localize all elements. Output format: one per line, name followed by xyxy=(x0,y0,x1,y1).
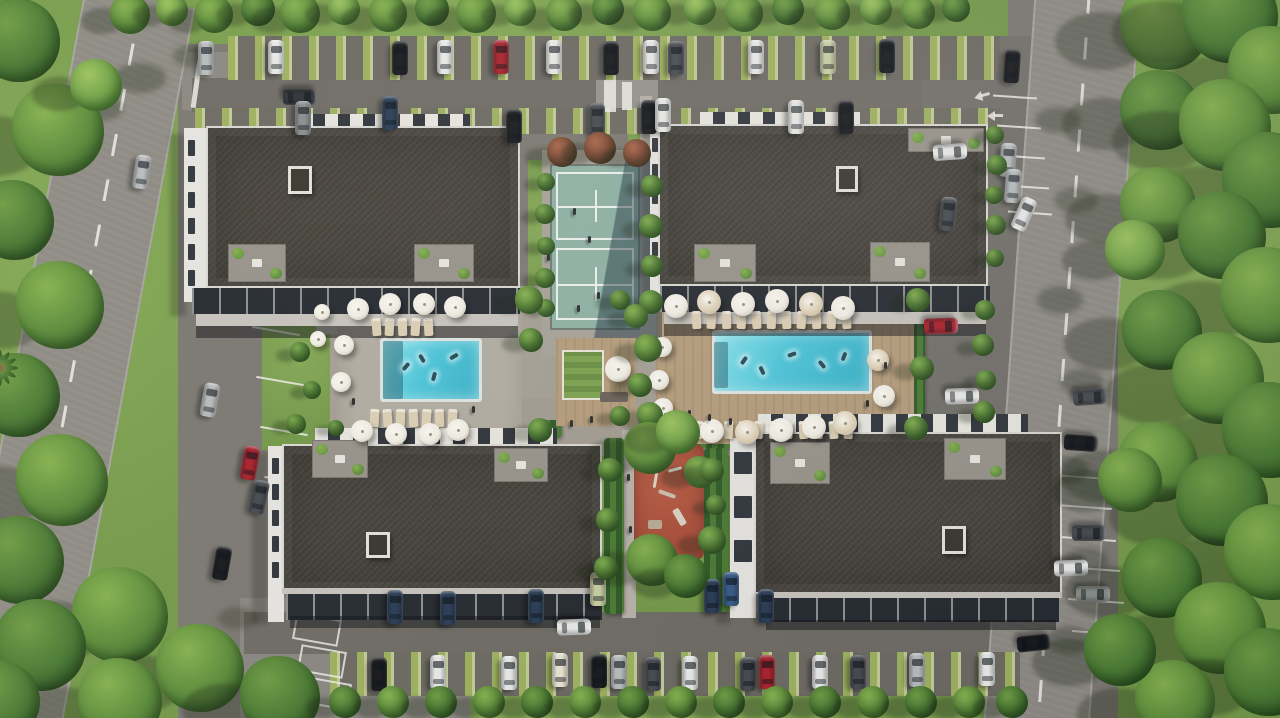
car xyxy=(591,654,607,688)
building-bottom-right-ground-shadow xyxy=(766,620,1056,630)
shrub xyxy=(706,495,726,515)
patio-umbrella xyxy=(802,415,826,439)
car-rear-window xyxy=(201,65,212,70)
shrub xyxy=(328,420,344,436)
shrub xyxy=(290,342,310,362)
car-windshield xyxy=(592,109,603,116)
swimming-pool xyxy=(712,330,872,394)
car-rear-window xyxy=(853,679,864,684)
pool-lounger xyxy=(782,311,792,329)
car-rear-window xyxy=(1021,638,1027,649)
car-windshield xyxy=(433,661,444,668)
car-windshield xyxy=(578,621,585,632)
person xyxy=(629,526,632,533)
car xyxy=(557,618,592,635)
car xyxy=(643,40,659,74)
terrace-furniture xyxy=(970,455,980,463)
tree xyxy=(634,334,662,362)
patio-umbrella xyxy=(331,372,351,392)
car xyxy=(655,98,671,132)
car-rear-window xyxy=(929,321,934,332)
car-windshield xyxy=(658,104,669,111)
car xyxy=(788,100,804,134)
car-windshield xyxy=(390,596,401,603)
car-windshield xyxy=(443,597,454,604)
terrace-furniture xyxy=(720,259,730,267)
car-rear-window xyxy=(658,122,669,127)
umbrella-pole xyxy=(842,307,845,310)
terrace-plant xyxy=(532,468,544,479)
car-rear-window xyxy=(648,681,659,686)
car xyxy=(820,40,836,74)
shrub xyxy=(639,214,663,238)
car-rear-window xyxy=(271,64,282,69)
car-rear-window xyxy=(791,124,802,129)
building-bottom-left-window xyxy=(272,562,279,578)
car xyxy=(924,317,959,334)
car-rear-window xyxy=(1077,528,1082,539)
car xyxy=(932,143,967,161)
play-equipment xyxy=(648,520,662,529)
tree xyxy=(16,261,104,349)
car-rear-window xyxy=(433,679,444,684)
pool-step xyxy=(383,341,403,399)
patio-umbrella xyxy=(413,293,435,315)
car-rear-window xyxy=(751,64,762,69)
person xyxy=(866,400,869,407)
car xyxy=(645,657,661,691)
shrub xyxy=(986,126,1004,144)
shrub xyxy=(986,215,1006,235)
car xyxy=(945,387,980,404)
umbrella-pole xyxy=(357,308,360,311)
umbrella-pole xyxy=(711,430,714,433)
shrub xyxy=(641,175,663,197)
car-windshield xyxy=(509,115,520,122)
car-rear-window xyxy=(707,603,718,608)
tree xyxy=(664,554,708,598)
building-bottom-right-patio-band xyxy=(758,592,1062,598)
car-rear-window xyxy=(761,613,772,618)
umbrella-pole xyxy=(742,303,745,306)
car-windshield xyxy=(298,107,309,114)
arrow-stem xyxy=(981,92,990,97)
building-bottom-left-roof-terrace xyxy=(312,440,368,478)
car xyxy=(430,655,446,689)
terrace-plant xyxy=(774,446,786,457)
car-rear-window xyxy=(841,124,852,129)
building-top-right-roof-terrace xyxy=(694,244,756,282)
patio-umbrella xyxy=(334,335,354,355)
car-windshield xyxy=(555,659,566,666)
terrace-plant xyxy=(814,470,826,481)
car-rear-window xyxy=(443,615,454,620)
shrub xyxy=(976,370,996,390)
patio-umbrella xyxy=(419,423,441,445)
building-top-left-skylight xyxy=(288,166,312,194)
terrace-furniture xyxy=(252,259,262,267)
umbrella-pole xyxy=(883,395,886,398)
patio-umbrella xyxy=(314,304,330,320)
car xyxy=(552,653,568,687)
building-bottom-right-roof-terrace xyxy=(770,442,830,484)
car-windshield xyxy=(945,320,952,331)
umbrella-pole xyxy=(877,359,880,362)
terrace-plant xyxy=(698,248,710,259)
car-windshield xyxy=(648,663,659,670)
terrace-plant xyxy=(912,132,924,143)
car-windshield xyxy=(646,46,657,53)
car-windshield xyxy=(549,46,560,53)
shrub xyxy=(985,186,1003,204)
building-bottom-right-window xyxy=(734,540,752,562)
car-windshield xyxy=(841,106,852,113)
building-top-right-skylight xyxy=(836,166,858,192)
car-rear-window xyxy=(646,64,657,69)
car-rear-window xyxy=(374,681,385,686)
arrow-stem xyxy=(994,115,1003,118)
pool-lounger xyxy=(722,311,732,329)
patio-umbrella xyxy=(769,418,793,442)
pool-lounger xyxy=(410,318,420,337)
car-rear-window xyxy=(1059,563,1064,574)
building-bottom-left-window xyxy=(272,458,279,474)
building-bottom-left-roof-terrace xyxy=(494,448,548,482)
car xyxy=(603,41,619,75)
car-windshield xyxy=(614,661,625,668)
car xyxy=(611,655,627,689)
patio-umbrella xyxy=(735,420,759,444)
patio-umbrella xyxy=(831,296,855,320)
car-windshield xyxy=(912,659,923,666)
terrace-furniture xyxy=(516,461,526,469)
car-rear-window xyxy=(385,120,396,125)
shrub xyxy=(972,334,994,356)
car-rear-window xyxy=(1006,73,1017,79)
shrub xyxy=(596,508,620,532)
car-rear-window xyxy=(593,596,604,601)
shrub xyxy=(628,373,652,397)
building-top-left-window xyxy=(188,140,195,156)
umbrella-pole xyxy=(708,301,711,304)
car-windshield xyxy=(496,46,507,53)
car-rear-window xyxy=(762,679,773,684)
car-rear-window xyxy=(938,147,944,158)
car xyxy=(199,382,221,418)
shrub xyxy=(303,381,321,399)
shrub xyxy=(641,255,663,277)
patio-umbrella xyxy=(700,419,724,443)
building-top-left-roof-terrace xyxy=(228,244,286,282)
car-windshield xyxy=(966,390,973,401)
car xyxy=(295,101,311,135)
parking-line xyxy=(604,80,616,112)
car-rear-window xyxy=(912,677,923,682)
pool-lounger xyxy=(751,311,761,330)
car-windshield xyxy=(271,46,282,53)
patio-umbrella xyxy=(444,296,466,318)
patio-umbrella xyxy=(697,290,721,314)
umbrella-pole xyxy=(423,303,426,306)
car-body xyxy=(1003,48,1021,83)
umbrella-pole xyxy=(361,430,364,433)
terrace-furniture xyxy=(335,455,345,463)
car-rear-window xyxy=(815,679,826,684)
person xyxy=(627,474,630,481)
shrub xyxy=(537,173,555,191)
person xyxy=(708,414,711,421)
shrub xyxy=(700,458,724,482)
car-rear-window xyxy=(614,679,625,684)
car xyxy=(1063,434,1098,452)
terrace-plant xyxy=(914,268,926,279)
umbrella-pole xyxy=(340,381,343,384)
car xyxy=(198,41,214,75)
car-windshield xyxy=(1003,149,1014,157)
umbrella-pole xyxy=(321,311,324,314)
car-windshield xyxy=(201,47,212,54)
tree xyxy=(70,59,122,111)
palm-tree xyxy=(0,350,18,386)
umbrella-pole xyxy=(457,429,460,432)
car-rear-window xyxy=(288,92,293,103)
patio-umbrella xyxy=(347,298,369,320)
car xyxy=(371,657,387,691)
umbrella-pole xyxy=(675,305,678,308)
car-rear-window xyxy=(1078,392,1084,403)
shrub xyxy=(973,401,995,423)
person xyxy=(729,418,732,425)
car xyxy=(1003,48,1021,83)
terrace-plant xyxy=(458,268,470,279)
car-windshield xyxy=(1085,438,1093,449)
umbrella-pole xyxy=(317,338,320,341)
building-top-left-window xyxy=(188,270,195,286)
car-windshield xyxy=(707,585,718,592)
pool-lounger xyxy=(692,311,702,329)
car-windshield xyxy=(395,47,406,54)
car-rear-window xyxy=(562,622,567,633)
terrace-plant xyxy=(874,246,886,257)
car-rear-window xyxy=(531,613,542,618)
umbrella-pole xyxy=(343,344,346,347)
person xyxy=(570,420,573,427)
terrace-plant xyxy=(316,444,328,455)
pool-lounger xyxy=(371,318,381,337)
terrace-plant xyxy=(418,248,430,259)
car xyxy=(758,589,774,623)
car-windshield xyxy=(853,661,864,668)
building-top-left-window xyxy=(188,244,195,260)
car xyxy=(668,41,684,75)
car-rear-window xyxy=(594,678,605,683)
terrace-plant xyxy=(232,248,244,259)
car-windshield xyxy=(815,661,826,668)
pool-step xyxy=(714,342,728,388)
car-rear-window xyxy=(509,133,520,138)
umbrella-pole xyxy=(617,368,620,371)
car-rear-window xyxy=(685,680,696,685)
car-windshield xyxy=(954,146,962,157)
car-windshield xyxy=(761,595,772,602)
car-rear-window xyxy=(555,677,566,682)
patio-umbrella xyxy=(799,292,823,316)
car-windshield xyxy=(594,660,605,667)
car xyxy=(850,655,866,689)
shrub xyxy=(910,356,934,380)
car xyxy=(723,572,739,606)
car-rear-window xyxy=(743,681,754,686)
pool-lounger xyxy=(385,318,395,336)
tree xyxy=(1084,614,1156,686)
car xyxy=(1072,388,1107,406)
car xyxy=(740,657,756,691)
car-windshield xyxy=(1094,391,1102,402)
car xyxy=(392,41,408,75)
umbrella-pole xyxy=(395,433,398,436)
shrub xyxy=(535,204,555,224)
car-windshield xyxy=(743,663,754,670)
tree xyxy=(16,434,108,526)
building-top-left-roof-terrace xyxy=(414,244,474,282)
person xyxy=(884,362,887,369)
building-bottom-left-skylight xyxy=(366,532,390,558)
car xyxy=(493,40,509,74)
court-serviceline xyxy=(558,206,632,208)
patio-umbrella xyxy=(351,420,373,442)
car xyxy=(501,656,517,690)
car-rear-window xyxy=(982,676,993,681)
patio-umbrella xyxy=(765,289,789,313)
terrace-plant xyxy=(990,466,1002,477)
terrace-plant xyxy=(270,268,282,279)
umbrella-pole xyxy=(454,306,457,309)
patio-umbrella xyxy=(649,370,669,390)
person xyxy=(577,305,580,312)
shrub xyxy=(528,418,552,442)
tree xyxy=(1098,448,1162,512)
car-rear-window xyxy=(941,220,952,226)
car xyxy=(211,545,233,581)
car-rear-window xyxy=(726,596,737,601)
car-rear-window xyxy=(606,65,617,70)
car xyxy=(812,655,828,689)
car-rear-window xyxy=(395,65,406,70)
patio-umbrella xyxy=(310,331,326,347)
car xyxy=(979,652,995,686)
patio-umbrella xyxy=(447,419,469,441)
court-serviceline xyxy=(558,284,632,286)
car-windshield xyxy=(1008,175,1019,183)
shrub xyxy=(598,458,622,482)
shrub xyxy=(986,249,1004,267)
car xyxy=(437,40,453,74)
building-bottom-right-roof-terrace xyxy=(944,438,1006,480)
aerial-render-scene: Aerial 3D render of a four-building resi… xyxy=(0,0,1280,718)
umbrella-pole xyxy=(813,426,816,429)
car-rear-window xyxy=(1069,437,1075,448)
car-rear-window xyxy=(504,680,515,685)
car-rear-window xyxy=(1007,193,1018,199)
car-rear-window xyxy=(496,64,507,69)
shrub xyxy=(535,268,555,288)
terrace-plant xyxy=(740,268,752,279)
umbrella-pole xyxy=(780,429,783,432)
car-rear-window xyxy=(823,64,834,69)
car xyxy=(1072,525,1106,541)
car-rear-window xyxy=(549,64,560,69)
umbrella-pole xyxy=(429,433,432,436)
car xyxy=(682,656,698,690)
car-windshield xyxy=(385,102,396,109)
patio-umbrella xyxy=(379,293,401,315)
car xyxy=(909,653,925,687)
building-top-left-window xyxy=(188,166,195,182)
car xyxy=(440,591,456,625)
road-arrow-marking xyxy=(987,111,1003,121)
terrace-furniture xyxy=(895,258,905,266)
terrace-plant xyxy=(948,442,960,453)
car xyxy=(387,590,403,624)
umbrella-pole xyxy=(776,300,779,303)
car-windshield xyxy=(1007,55,1018,63)
tree xyxy=(656,410,700,454)
car-rear-window xyxy=(950,391,955,402)
shrub xyxy=(904,416,928,440)
car-windshield xyxy=(374,663,385,670)
tree xyxy=(996,686,1028,718)
building-bottom-right-window xyxy=(734,496,752,518)
car-rear-window xyxy=(440,64,451,69)
terrace-furniture xyxy=(439,259,449,267)
shrub xyxy=(594,556,618,580)
tree-red-foliage xyxy=(623,139,651,167)
car xyxy=(528,589,544,623)
car-windshield xyxy=(751,46,762,53)
terrace-furniture xyxy=(795,459,805,467)
terrace-plant xyxy=(352,464,364,475)
building-bottom-right-window xyxy=(734,452,752,474)
car-windshield xyxy=(440,46,451,53)
tree xyxy=(624,304,648,328)
person xyxy=(590,416,593,423)
building-top-left-window xyxy=(188,192,195,208)
patio-umbrella xyxy=(873,385,895,407)
car-windshield xyxy=(726,578,737,585)
pergola-green-roof xyxy=(562,350,604,400)
person xyxy=(588,236,591,243)
car-windshield xyxy=(137,160,149,168)
building-bottom-left-window xyxy=(272,484,279,500)
terrace-plant xyxy=(498,452,510,463)
tree xyxy=(72,567,168,663)
car-windshield xyxy=(823,46,834,53)
shrub xyxy=(906,288,930,312)
shrub xyxy=(537,237,555,255)
pool-lounger xyxy=(424,318,434,336)
car xyxy=(506,109,522,143)
building-bottom-left-window xyxy=(272,536,279,552)
shrub xyxy=(286,414,306,434)
shrub xyxy=(975,300,995,320)
shrub xyxy=(987,155,1007,175)
building-top-right-roof-terrace xyxy=(870,242,930,282)
car xyxy=(759,655,775,689)
car-rear-window xyxy=(390,614,401,619)
pool-lounger xyxy=(409,409,419,427)
shrub xyxy=(519,328,543,352)
car-windshield xyxy=(671,47,682,54)
